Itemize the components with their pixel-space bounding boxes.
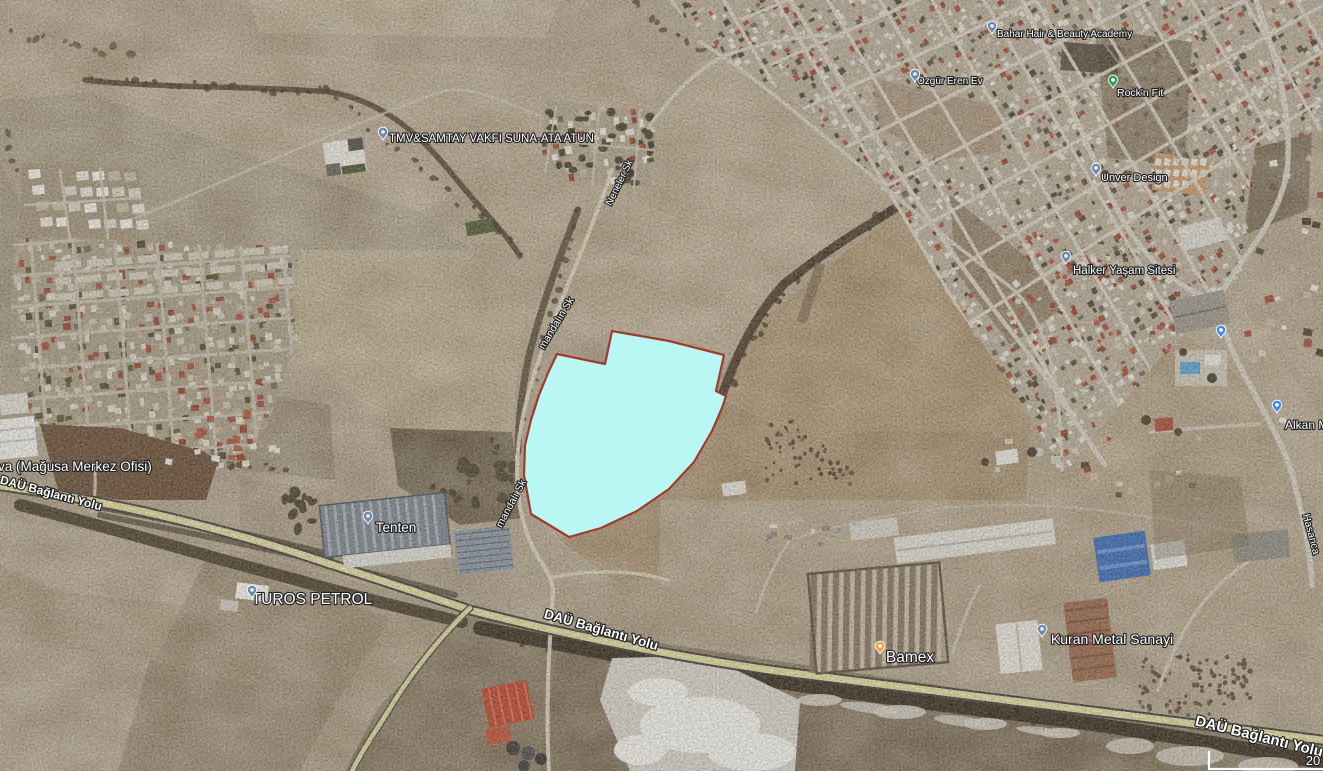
svg-text:Halker Yaşam Sitesi: Halker Yaşam Sitesi bbox=[1073, 265, 1175, 277]
svg-text:Kuran Metal Sanayi: Kuran Metal Sanayi bbox=[1051, 631, 1173, 647]
svg-text:Ünver Design: Ünver Design bbox=[1101, 172, 1168, 184]
svg-text:TMV&SAMTAY VAKFI SUNA-ATA ATUN: TMV&SAMTAY VAKFI SUNA-ATA ATUN bbox=[389, 133, 594, 145]
svg-text:Özgür Eren Ev: Özgür Eren Ev bbox=[917, 75, 983, 87]
svg-text:Tenten: Tenten bbox=[376, 520, 417, 535]
svg-text:va (Mağusa Merkez Ofisi): va (Mağusa Merkez Ofisi) bbox=[0, 459, 152, 474]
svg-text:20: 20 bbox=[1306, 753, 1320, 768]
svg-text:TUROS PETROL: TUROS PETROL bbox=[252, 591, 373, 608]
svg-text:Alkan Mob: Alkan Mob bbox=[1285, 418, 1323, 432]
svg-text:Rock'n Fit: Rock'n Fit bbox=[1117, 87, 1163, 99]
svg-text:Bahar Hair & Beauty Academy: Bahar Hair & Beauty Academy bbox=[997, 29, 1132, 40]
svg-text:Bamex: Bamex bbox=[886, 649, 934, 666]
